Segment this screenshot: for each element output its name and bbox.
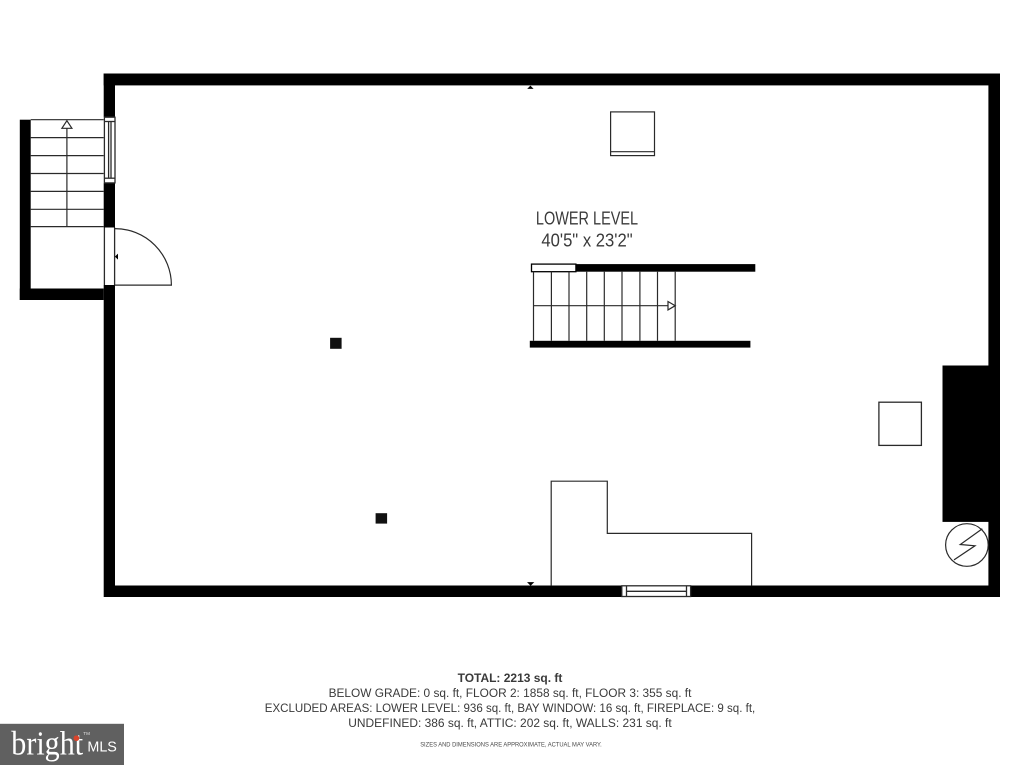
svg-text:SIZES AND DIMENSIONS ARE APPRO: SIZES AND DIMENSIONS ARE APPROXIMATE, AC… bbox=[420, 742, 602, 749]
svg-text:TOTAL: 2213 sq. ft: TOTAL: 2213 sq. ft bbox=[458, 671, 563, 685]
svg-text:UNDEFINED: 386 sq. ft, ATTIC:: UNDEFINED: 386 sq. ft, ATTIC: 202 sq. ft… bbox=[348, 716, 672, 730]
svg-text:40'5" x 23'2": 40'5" x 23'2" bbox=[541, 231, 632, 251]
svg-text:LOWER LEVEL: LOWER LEVEL bbox=[536, 209, 638, 229]
svg-text:bright: bright bbox=[11, 726, 83, 763]
svg-text:TM: TM bbox=[83, 731, 90, 736]
svg-text:MLS: MLS bbox=[87, 740, 117, 756]
svg-text:BELOW GRADE: 0 sq. ft, FLOOR 2: BELOW GRADE: 0 sq. ft, FLOOR 2: 1858 sq.… bbox=[329, 686, 692, 700]
svg-text:EXCLUDED AREAS: LOWER LEVEL: 9: EXCLUDED AREAS: LOWER LEVEL: 936 sq. ft,… bbox=[265, 701, 756, 715]
